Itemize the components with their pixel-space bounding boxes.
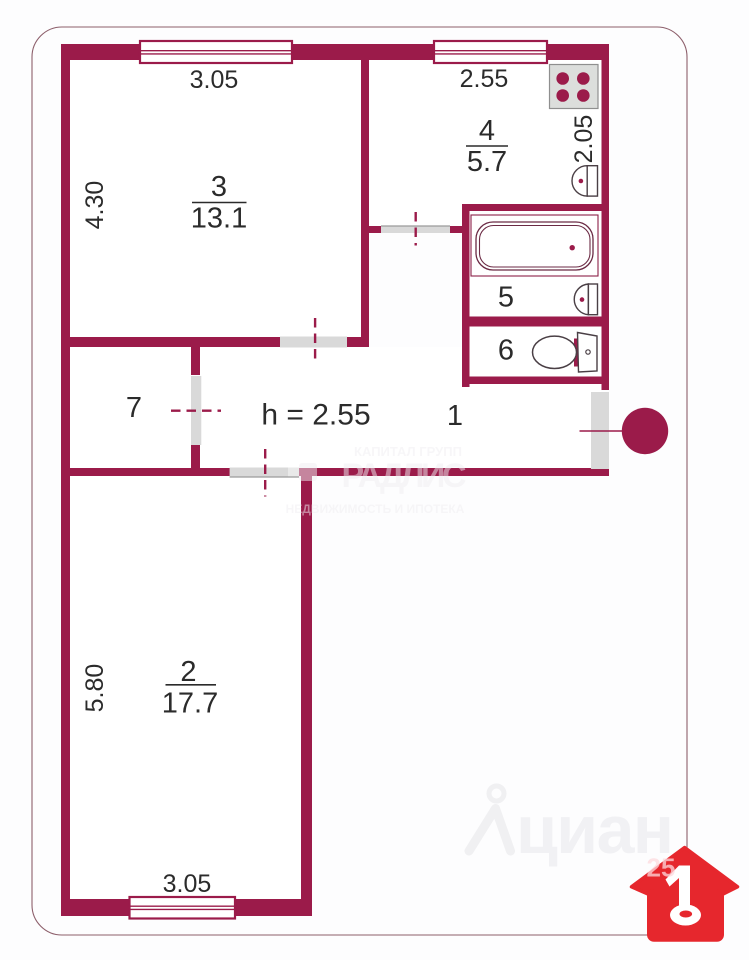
- svg-text:2.55: 2.55: [460, 65, 509, 93]
- svg-text:1: 1: [447, 400, 463, 432]
- svg-text:4.30: 4.30: [81, 181, 109, 230]
- svg-text:6: 6: [498, 335, 514, 367]
- svg-text:3.05: 3.05: [190, 66, 239, 94]
- svg-text:2.05: 2.05: [570, 115, 598, 164]
- svg-text:3: 3: [211, 171, 227, 203]
- svg-text:5.7: 5.7: [467, 146, 507, 178]
- svg-text:5.80: 5.80: [81, 664, 109, 713]
- svg-text:h = 2.55: h = 2.55: [261, 399, 370, 432]
- svg-text:4: 4: [479, 115, 495, 147]
- svg-text:5: 5: [498, 282, 514, 314]
- svg-text:2: 2: [180, 656, 196, 688]
- svg-text:3.05: 3.05: [163, 870, 212, 898]
- svg-text:25: 25: [647, 853, 676, 883]
- svg-text:7: 7: [126, 392, 142, 424]
- svg-text:РАДЛИС: РАДЛИС: [342, 457, 467, 495]
- svg-text:НЕДВИЖИМОСТЬ И ИПОТЕКА: НЕДВИЖИМОСТЬ И ИПОТЕКА: [286, 502, 465, 516]
- svg-text:17.7: 17.7: [162, 688, 218, 720]
- svg-text:13.1: 13.1: [191, 203, 247, 235]
